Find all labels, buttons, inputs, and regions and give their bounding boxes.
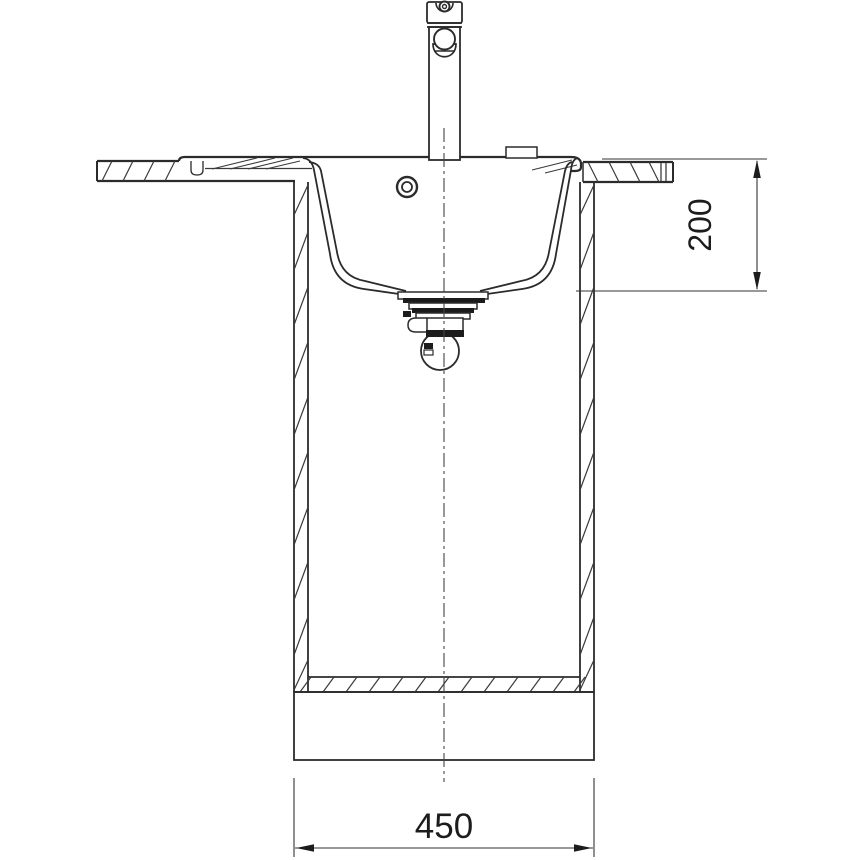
drain-elbow [408,318,427,332]
cabinet-plinth [294,692,594,760]
dimension-cabinet-width: 450 [294,778,594,857]
overflow-knob-center [402,182,412,192]
overflow-knob-ring [397,177,417,197]
sink-section-drawing: 200 450 [0,0,860,860]
trap-detail-light [424,350,433,355]
arrow-right [574,844,592,852]
bowl-inner-right [480,162,572,291]
countertop-left-hatch [102,161,175,181]
cabinet-right-wall [580,182,594,692]
countertop-right [583,162,673,182]
trap-detail-dark [424,343,433,349]
bowl-outer-left [303,158,399,294]
cabinet-left-wall-hatch [294,185,308,690]
cabinet-bottom-panel-hatch [300,677,585,692]
drain-assembly [398,292,488,370]
dimension-bowl-depth: 200 [576,159,767,291]
drain-nut-band [426,330,464,337]
faucet-handle-joint [434,29,455,50]
dimension-depth-value: 200 [682,198,718,251]
arrow-left [296,844,314,852]
sink-deck-texture [212,158,577,173]
sink [179,157,581,294]
sink-rim-notch [191,161,203,175]
technical-drawing-canvas: 200 450 [0,0,860,860]
drain-clamp [403,311,411,317]
arrow-down [753,272,761,290]
countertop-right-hatch [588,162,659,182]
cabinet-left-wall [294,182,308,692]
dimension-width-value: 450 [415,807,473,846]
bowl-inner-left [309,162,406,291]
drain-flange [398,292,488,299]
deck-block [506,147,537,158]
drain-pipe [427,318,463,331]
arrow-up [753,160,761,178]
cabinet-right-wall-hatch [580,185,594,690]
countertop-left [97,161,295,181]
faucet-aerator-ring [440,2,450,12]
